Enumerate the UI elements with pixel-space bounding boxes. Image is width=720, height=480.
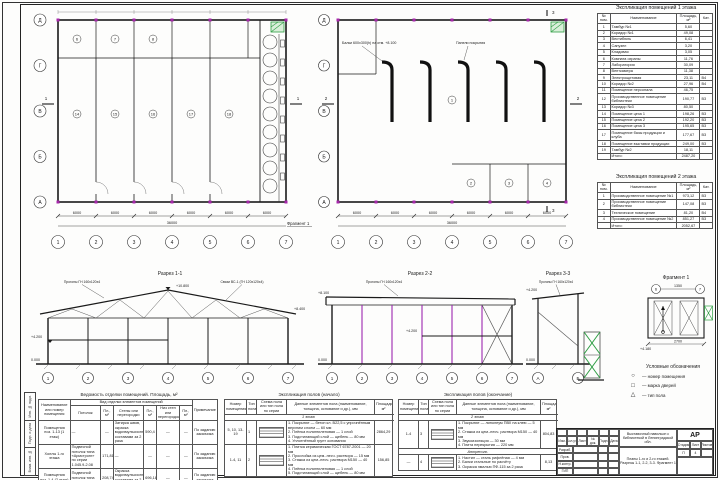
svg-text:6000: 6000: [73, 211, 81, 215]
floors-schedule-2: Экспликация полов (окончание) Номер поме…: [398, 392, 558, 471]
svg-text:6000: 6000: [467, 211, 475, 215]
section-2-2: Разрез 2-2 Прогоны ГН 160х120х4 +8.100 +…: [318, 268, 523, 388]
sheet-number: 4: [690, 449, 701, 457]
finish-rows: Помещения поз. 1-13 (1 этаж)——Затирка шв…: [39, 420, 218, 480]
section2-levels: +8.100 +4.200 0.000: [318, 291, 417, 362]
svg-text:3: 3: [552, 208, 555, 213]
svg-text:3: 3: [508, 181, 511, 186]
truss-diagonals: [48, 291, 288, 318]
plan2-room-numbers: 1 2 3 4: [451, 98, 549, 186]
svg-text:2: 2: [95, 240, 98, 246]
plan1-room-numbers: 14 15 16 17 18 6 7 8: [75, 37, 232, 117]
svg-text:6: 6: [481, 376, 484, 381]
svg-text:6000: 6000: [111, 211, 119, 215]
svg-text:6000: 6000: [391, 211, 399, 215]
title-block: Изм. Кол.уч. Лист № док. Подп. Дата Разр…: [556, 428, 714, 476]
svg-text:7: 7: [511, 376, 514, 381]
plan2-callout-2: Панели покрытия: [456, 41, 485, 45]
svg-text:7: 7: [565, 240, 568, 246]
plan1-green-unit: [271, 22, 284, 32]
section1-mark-label: 1: [45, 96, 48, 101]
svg-text:1: 1: [451, 98, 454, 103]
section3-callout: Прогоны ГН 160х120х4: [539, 280, 573, 284]
svg-text:7: 7: [114, 37, 117, 42]
floors2-title: Экспликация полов (окончание): [398, 392, 558, 397]
svg-text:2: 2: [375, 240, 378, 246]
svg-text:6000: 6000: [429, 211, 437, 215]
svg-text:+4.200: +4.200: [406, 329, 417, 333]
title-block-stage: АР Стадия Лист Листов П 4: [677, 429, 713, 475]
legend-title: Условные обозначения: [628, 364, 718, 370]
plan1-bay-dims: 60006000 60006000 60006000: [73, 211, 271, 215]
svg-text:+8.100: +8.100: [318, 291, 329, 295]
table-row: Итого:2487,20: [598, 153, 713, 159]
frame-margin-strip: Инв. № подл. Подп. и дата Взам. инв. №: [24, 392, 36, 476]
table-row: 17Помещение базы продукции и клуба177,67…: [598, 130, 713, 141]
svg-text:16: 16: [151, 112, 156, 117]
table-row: Итого:2052,67: [598, 223, 713, 229]
table-row: Холлы 1-го этажаПодвесной потолок типа «…: [39, 444, 218, 468]
expl1-h-cat: Кат.: [700, 13, 713, 24]
svg-text:3: 3: [391, 376, 394, 381]
explication-floor1: Экспликация помещений 1 этажа № пом. Наи…: [597, 5, 715, 160]
svg-text:6: 6: [247, 376, 250, 381]
plan2-callout-1: Балки 600х300(h) на отм. +8.100: [342, 41, 396, 45]
svg-text:4: 4: [421, 376, 424, 381]
svg-text:3: 3: [127, 376, 130, 381]
svg-text:6000: 6000: [225, 211, 233, 215]
plan1-total-dim: 36000: [167, 221, 178, 225]
svg-text:2: 2: [361, 376, 364, 381]
table-row: 1-431. Покрытие — линолеум ПВХ на клею —…: [399, 420, 557, 448]
svg-text:36000: 36000: [447, 221, 458, 225]
section2-title: Разрез 2-2: [408, 271, 433, 277]
fragment-reference: Фрагмент 1: [287, 221, 310, 226]
plan1-service-strip: [263, 34, 285, 202]
table-row: 5, 10, 13-1911. Покрытие — бетон кл. В22…: [225, 420, 393, 444]
stair-flights: [654, 301, 698, 335]
plan2-outer-walls: [338, 20, 566, 202]
legend-item-door-mark: □ — марка дверей: [628, 383, 718, 389]
svg-text:+4.200: +4.200: [526, 288, 537, 292]
table-row: Помещения поз. 1-13 (1 этаж)——Затирка шв…: [39, 420, 218, 444]
braced-ladder: [578, 330, 604, 384]
explication2-title: Экспликация помещений 2 этажа: [597, 174, 715, 180]
section2-x-brace: [482, 305, 512, 364]
section1-title: Разрез 1-1: [158, 271, 183, 277]
svg-text:5: 5: [207, 376, 210, 381]
svg-text:14: 14: [75, 112, 80, 117]
svg-text:+4.200: +4.200: [31, 335, 42, 339]
svg-text:3: 3: [552, 10, 555, 15]
drawing-sheet: 1 1 14 15 16 17 18 6 7 8 60006000 600060…: [0, 0, 720, 480]
stage-value: П: [677, 449, 690, 457]
plan2-roof-beams: [382, 62, 544, 122]
plan2-bay-dims: 60006000 60006000 60006000: [353, 211, 551, 215]
table-row: Помещения поз. 1-4 (2 этаж)Подвесной пот…: [39, 468, 218, 480]
svg-text:3: 3: [133, 240, 136, 246]
svg-text:17: 17: [189, 112, 194, 117]
svg-text:5: 5: [209, 240, 212, 246]
svg-text:4: 4: [171, 240, 174, 246]
table-row: 1-4, 1121. Плитка керамическая ГОСТ 6787…: [225, 444, 393, 477]
svg-text:2: 2: [325, 96, 328, 101]
fragment1-dim-bottom: 2700: [674, 340, 682, 344]
explication1-title: Экспликация помещений 1 этажа: [597, 5, 715, 11]
svg-text:6: 6: [247, 240, 250, 246]
svg-text:4: 4: [451, 240, 454, 246]
object-name: Выставочный павильон с библиотекой в Лен…: [619, 429, 677, 447]
plan2-columns: [337, 19, 568, 204]
svg-text:1: 1: [47, 376, 50, 381]
svg-text:15: 15: [113, 112, 118, 117]
fragment-1: Фрагмент 1 1350 6 7 +4.180 2700: [634, 272, 718, 360]
svg-text:5: 5: [489, 240, 492, 246]
door-mark-icon: □: [628, 383, 638, 389]
legend: Условные обозначения ○ — номер помещения…: [628, 364, 718, 402]
table-row: 12Производственное помещение библиотеки1…: [598, 94, 713, 105]
table-row: 2Производственное помещение библиотеки14…: [598, 199, 713, 210]
svg-text:1: 1: [337, 240, 340, 246]
title-block-revisions: Изм. Кол.уч. Лист № док. Подп. Дата Разр…: [557, 429, 619, 475]
table-row: —41. Настил — сталь рифлёная — 4 мм 2. Б…: [399, 455, 557, 470]
title-block-names: Выставочный павильон с библиотекой в Лен…: [619, 429, 677, 475]
org-cell: [677, 457, 713, 475]
svg-text:0.000: 0.000: [318, 358, 327, 362]
svg-text:3: 3: [413, 240, 416, 246]
fragment1-dim-top: 1350: [674, 284, 682, 288]
svg-text:2: 2: [577, 96, 580, 101]
plan-first-floor: 1 1 14 15 16 17 18 6 7 8 60006000 600060…: [24, 4, 314, 256]
svg-text:2: 2: [470, 181, 473, 186]
finish-title: Ведомость отделки помещений. Площадь, м²: [38, 392, 220, 397]
svg-text:4: 4: [167, 376, 170, 381]
expl1-h-number: № пом.: [598, 13, 611, 24]
floor-type-icon: △: [628, 392, 638, 398]
explication-floor2: Экспликация помещений 2 этажа № пом. Наи…: [597, 174, 715, 229]
expl2-rows: 1Производственное помещение №1973,12В32П…: [598, 193, 713, 229]
svg-text:1: 1: [57, 240, 60, 246]
plan-second-floor: Балки 600х300(h) на отм. +8.100 Панели п…: [318, 4, 590, 256]
svg-text:6: 6: [76, 37, 79, 42]
fragment1-level: +4.180: [640, 347, 651, 351]
svg-text:5: 5: [451, 376, 454, 381]
svg-text:7: 7: [287, 376, 290, 381]
finish-schedule: Ведомость отделки помещений. Площадь, м²…: [38, 392, 220, 480]
svg-text:+8.400: +8.400: [294, 307, 305, 311]
svg-text:1: 1: [297, 96, 300, 101]
svg-text:6000: 6000: [263, 211, 271, 215]
green-panel: [705, 306, 713, 320]
legend-item-room-number: ○ — номер помещения: [628, 373, 718, 379]
section-1-1: Разрез 1-1 Прогоны ГН 160х120х4 Связи ВС…: [30, 268, 310, 388]
svg-text:6000: 6000: [149, 211, 157, 215]
plan2-green-unit: [551, 22, 564, 32]
svg-text:1: 1: [331, 376, 334, 381]
svg-text:18: 18: [227, 112, 232, 117]
svg-text:0.000: 0.000: [31, 358, 40, 362]
room-number-icon: ○: [628, 373, 638, 379]
svg-text:2: 2: [87, 376, 90, 381]
legend-item-floor-type: △ — тип пола: [628, 392, 718, 398]
floors1-rows: 1 этаж5, 10, 13-1911. Покрытие — бетон к…: [225, 414, 393, 477]
svg-text:6000: 6000: [187, 211, 195, 215]
floors2-rows: 2 этаж1-431. Покрытие — линолеум ПВХ на …: [399, 414, 557, 470]
floors1-title: Экспликация полов (начало): [224, 392, 394, 397]
svg-text:+10.800: +10.800: [176, 284, 189, 288]
svg-text:7: 7: [285, 240, 288, 246]
floors-schedule-1: Экспликация полов (начало) Номер помещен…: [224, 392, 394, 477]
mark-ar: АР: [677, 429, 713, 441]
svg-text:4: 4: [546, 181, 549, 186]
svg-text:0.000: 0.000: [526, 358, 535, 362]
section2-callout: Прогоны ГН 160х120х4: [366, 280, 402, 284]
svg-text:Г: Г: [323, 64, 326, 70]
svg-text:6: 6: [527, 240, 530, 246]
expl1-h-name: Наименование: [610, 13, 677, 24]
expl1-rows: 1Тамбур №15,602Коридор №149,083Вестибюль…: [598, 24, 713, 160]
sheet-name: Планы 1-го и 2-го этажей. Разрезы 1-1, 2…: [619, 447, 677, 475]
sheets-total: [701, 449, 713, 457]
svg-text:6000: 6000: [505, 211, 513, 215]
section3-title: Разрез 3-3: [546, 271, 571, 277]
svg-text:Г: Г: [39, 64, 42, 70]
fragment1-title: Фрагмент 1: [663, 275, 690, 281]
expl1-h-area: Площадь, м²: [677, 13, 700, 24]
svg-text:6000: 6000: [353, 211, 361, 215]
section1-callout-left: Прогоны ГН 160х120х4: [64, 280, 100, 284]
svg-text:8: 8: [152, 37, 155, 42]
svg-text:6000: 6000: [543, 211, 551, 215]
section1-callout-right: Связи ВС-1 (ГН 120х120х4): [220, 280, 263, 284]
